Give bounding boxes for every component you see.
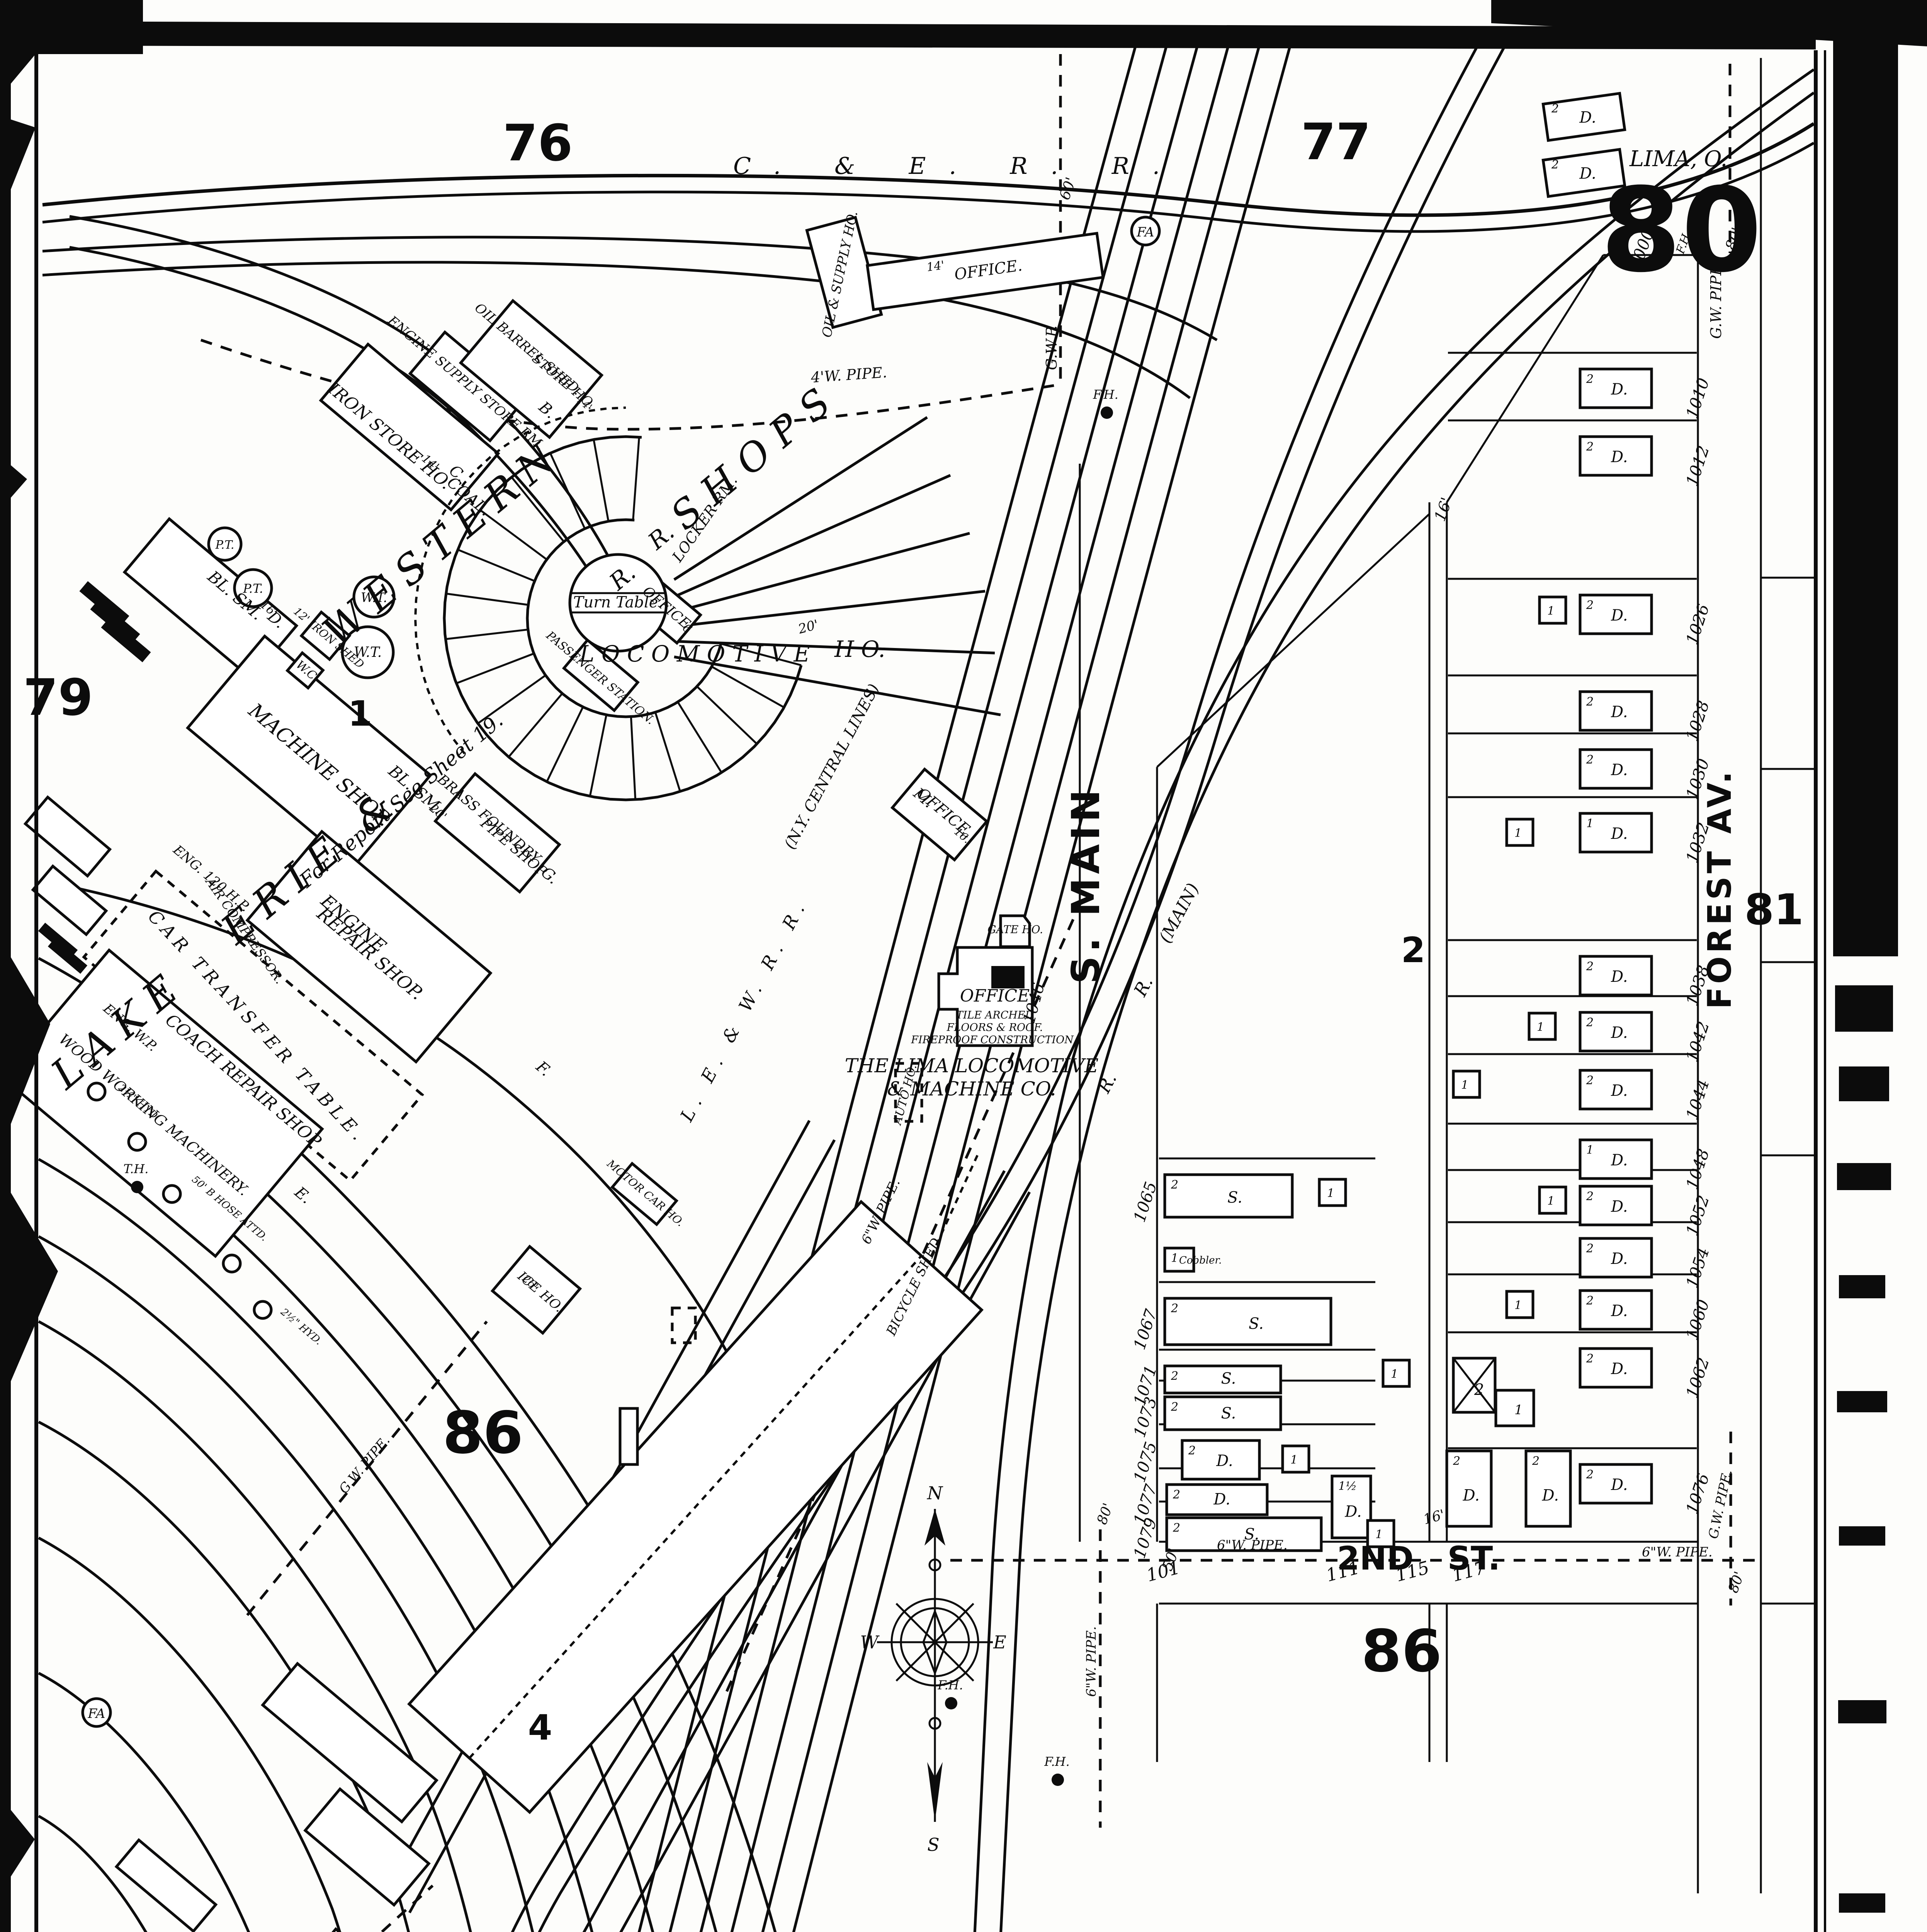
house-use: D.: [1611, 1024, 1628, 1042]
house-use: D.: [1611, 761, 1628, 779]
story-count: 2: [1586, 1074, 1594, 1087]
roundhouse-stall-line: [456, 653, 534, 683]
house: D.21062: [1580, 1349, 1713, 1400]
story-count: 2: [1474, 1381, 1484, 1399]
story-count: 2: [1171, 1302, 1178, 1315]
office-label: OFFICE: [960, 986, 1030, 1006]
construction-note: FIREPROOF CONSTRUCTION.: [911, 1034, 1076, 1046]
outbuilding: 1: [1383, 1360, 1409, 1386]
railroad-label-lew: L. E. & W. R. R.: [676, 894, 812, 1125]
fire-hydrant-label: F.H.: [1093, 387, 1118, 402]
address-number: 1075: [1130, 1439, 1161, 1485]
roundhouse-stall-line: [697, 686, 757, 744]
pipe-label: 6"W. PIPE.: [1084, 1626, 1099, 1697]
compass-s: S: [927, 1834, 940, 1855]
story-count: 2: [1551, 158, 1559, 172]
roundhouse-stall-line: [458, 549, 535, 581]
block-number-4: 4: [528, 1708, 552, 1748]
block-86: 86: [443, 1400, 523, 1467]
house: D.21052: [1580, 1186, 1713, 1238]
compass-e: E: [993, 1632, 1006, 1653]
house-use: D.: [1611, 1198, 1628, 1216]
roundhouse-stall-line: [631, 717, 635, 800]
address-number: 1026: [1682, 602, 1713, 647]
company-label: THE LIMA LOCOMOTIVE: [845, 1054, 1099, 1077]
roundhouse-stall-line: [445, 629, 528, 639]
address-number: 1067: [1130, 1307, 1161, 1352]
railroad-label-ce: C. & E. R. R.: [733, 153, 1183, 180]
house: D.21026: [1580, 595, 1713, 647]
story-count: 2: [1171, 1400, 1178, 1414]
house-use: D.: [1216, 1452, 1233, 1470]
adjacent-sheet-79: 79: [23, 668, 93, 727]
story-count: 1: [1514, 1299, 1522, 1312]
block-86: 86: [1361, 1618, 1442, 1685]
house: D.21075: [1130, 1439, 1259, 1485]
fire-hydrant: [1101, 406, 1113, 419]
pipe-label: 6"W. PIPE.: [1642, 1544, 1713, 1560]
story-count: 2: [1171, 1369, 1178, 1383]
house-use: D.: [1579, 165, 1596, 183]
address-number: 1076: [1682, 1471, 1713, 1516]
house-use: D.: [1611, 825, 1628, 843]
story-count: 2: [1586, 695, 1594, 709]
house: D.2: [1543, 94, 1625, 141]
adjacent-sheet-81: 81: [1744, 885, 1803, 934]
house-use: S.: [1227, 1189, 1242, 1207]
street-name-forest-av: FOREST AV.: [1701, 768, 1738, 1009]
house: D.1½: [1332, 1476, 1371, 1538]
pipe-label: 6"W. PIPE.: [1217, 1537, 1288, 1553]
adjacent-sheet-76: 76: [503, 114, 573, 172]
story-count: 1½: [1338, 1480, 1357, 1493]
story-count: 1: [1391, 1367, 1398, 1381]
house: D.11032: [1580, 813, 1713, 865]
story-count: 1: [1171, 1252, 1178, 1265]
outbuilding: 1: [1507, 1291, 1533, 1318]
house: D.21038: [1580, 956, 1713, 1008]
roundhouse-stall-line: [594, 439, 608, 521]
locomotive-house-label: H O.: [834, 636, 885, 662]
story-count: 2: [1586, 1190, 1594, 1203]
roundhouse-stall-line: [547, 707, 583, 782]
story-count: 2: [1532, 1454, 1540, 1468]
block-number-1: 1: [348, 694, 372, 734]
house: D.21076: [1580, 1464, 1713, 1516]
story-count: 2: [1586, 1016, 1594, 1029]
adjacent-sheet-77: 77: [1301, 112, 1371, 171]
railroad-tracks: [39, 31, 1814, 1932]
house: D.2: [1526, 1451, 1570, 1526]
house-use: D.: [1611, 448, 1628, 466]
story-count: 1: [1290, 1453, 1298, 1467]
address-number: 1028: [1682, 698, 1713, 743]
story-count: 2: [1586, 1352, 1594, 1366]
story-count: 2: [1586, 1468, 1594, 1481]
story-count: 2: [1551, 102, 1559, 116]
address-number: 1062: [1682, 1355, 1713, 1400]
house-use: D.: [1611, 968, 1628, 986]
story-count: 1: [1514, 1402, 1523, 1418]
roundhouse-stall-line: [712, 667, 784, 707]
hydrant-label: T.H.: [124, 1162, 149, 1176]
pipe-label: G.W. PIPE.: [1708, 260, 1725, 339]
street-width: 80': [1094, 1501, 1116, 1527]
locomotive-house-label: L O C O M O T I V E: [579, 641, 810, 667]
street-width: 16': [1422, 1507, 1446, 1528]
story-count: 2: [1586, 753, 1594, 767]
address-number: 1060: [1682, 1297, 1713, 1342]
fire-alarm-label: FA: [1136, 224, 1154, 240]
story-count: 1: [1547, 1194, 1555, 1208]
sanborn-map-page: D.2D.2D.21010D.21012D.21026D.21028D.2103…: [0, 0, 1927, 1932]
story-count: 2: [1586, 372, 1594, 386]
house-use: D.: [1611, 607, 1628, 624]
house-use: D.: [1463, 1487, 1480, 1505]
house: D.21042: [1580, 1012, 1713, 1064]
outbuilding: 1: [1453, 1071, 1480, 1097]
block-number-2: 2: [1401, 930, 1426, 971]
dimension: 14': [926, 259, 945, 274]
street-width: 80': [1725, 1570, 1748, 1595]
house-use: S.: [1249, 1315, 1264, 1333]
address-number: 1042: [1682, 1019, 1713, 1064]
house-use: D.: [1579, 109, 1596, 127]
fire-hydrant: [1052, 1774, 1064, 1786]
compass-n: N: [927, 1483, 943, 1503]
house-use: D.: [1542, 1487, 1559, 1505]
address-number: 1052: [1682, 1193, 1713, 1238]
hydrant-note: 2½" HYD.: [278, 1306, 325, 1347]
house-use: D.: [1611, 1302, 1628, 1320]
fire-alarm-label: FA: [87, 1706, 105, 1721]
dimension: 20': [796, 617, 820, 637]
outbuilding: 1: [1529, 1013, 1555, 1039]
story-count: 2: [1173, 1521, 1180, 1535]
house: S.21065: [1130, 1175, 1292, 1225]
story-count: 2: [1453, 1454, 1460, 1468]
story-count: 2: [1188, 1444, 1196, 1458]
street-name-s-main: S. MAIN: [1063, 786, 1108, 984]
house-use: D.: [1213, 1490, 1230, 1508]
house-use: S.: [1221, 1405, 1236, 1422]
tank-label: P.T.: [215, 538, 235, 552]
outbuilding: 1: [1507, 819, 1533, 845]
story-count: 1: [1586, 1143, 1594, 1157]
tank-label: P.T.: [243, 581, 263, 596]
story-count: 2: [1586, 1242, 1594, 1255]
story-count: 2: [1586, 440, 1594, 454]
roundhouse-stall-line: [633, 437, 639, 520]
story-count: 2: [1586, 960, 1594, 973]
outbuilding: 1: [1319, 1179, 1346, 1206]
house-use: D.: [1611, 1250, 1628, 1268]
house: D.11048: [1580, 1140, 1713, 1192]
motor-car-house-label: MOTOR CAR HO.: [604, 1157, 687, 1229]
address-number: 1044: [1682, 1077, 1713, 1122]
house: D.21028: [1580, 692, 1713, 743]
story-count: 1: [1327, 1187, 1334, 1200]
outbuilding: 1: [1540, 597, 1566, 623]
story-count: 1: [1586, 817, 1594, 830]
address-number: 1012: [1682, 443, 1713, 488]
roundhouse-stall-line: [509, 694, 562, 757]
house-use: D.: [1611, 1476, 1628, 1494]
story-count: 2: [1173, 1488, 1180, 1502]
street-width: 16': [1431, 495, 1456, 524]
cobbler-label: Cobbler.: [1179, 1255, 1222, 1266]
hydrant: [131, 1181, 143, 1193]
house: D.21012: [1580, 437, 1713, 488]
roundhouse-stall-line: [446, 594, 528, 605]
house-use: D.: [1611, 1151, 1628, 1169]
story-count: 2: [1586, 1294, 1594, 1308]
house: D.21060: [1580, 1291, 1713, 1342]
outbuilding: 1: [1283, 1446, 1309, 1472]
roundhouse-stall-line: [590, 715, 606, 796]
story-count: 2: [1586, 599, 1594, 612]
house-use: D.: [1611, 381, 1628, 398]
roundhouse-stall-line: [678, 702, 721, 773]
house: D.21044: [1580, 1070, 1713, 1122]
water-tank-label: W.T.: [361, 590, 387, 605]
story-count: 1: [1461, 1078, 1468, 1092]
pipe-label: G.W.P.: [1043, 325, 1060, 370]
street-name-2nd: 2ND: [1337, 1539, 1414, 1577]
house: S.21067: [1130, 1298, 1331, 1352]
track-letter: F.: [532, 1058, 554, 1080]
railroad-label-nyc: (N.Y. CENTRAL LINES): [781, 681, 883, 852]
map-canvas: D.2D.2D.21010D.21012D.21026D.21028D.2103…: [0, 0, 1927, 1932]
story-count: 1: [1547, 604, 1555, 618]
address-number: 1010: [1682, 376, 1713, 421]
compass-rose: N E S W: [860, 1483, 1006, 1855]
street-name-2nd-st: ST.: [1448, 1539, 1500, 1577]
gate-house-label: GATE HO.: [987, 923, 1043, 936]
house-use: D.: [1344, 1503, 1361, 1521]
rr-shops-label: S H O P S: [662, 380, 839, 539]
house-use: D.: [1611, 703, 1628, 721]
fire-hydrant: [945, 1697, 957, 1709]
address-number: 1054: [1682, 1245, 1713, 1290]
story-count: 1: [1537, 1020, 1544, 1034]
house: D.21030: [1580, 750, 1713, 801]
house-use: D.: [1611, 1360, 1628, 1378]
fire-hydrant-label: F.H.: [1044, 1754, 1069, 1769]
house-use: D.: [1611, 1082, 1628, 1100]
track-letter: E.: [291, 1183, 315, 1207]
compass-w: W: [860, 1632, 880, 1653]
outbuilding: 1: [1540, 1187, 1566, 1213]
roundhouse-stall-line: [655, 712, 680, 791]
story-count: 2: [1171, 1178, 1178, 1192]
story-count: 1: [1514, 827, 1522, 840]
house: D.2: [1447, 1451, 1491, 1526]
address-number: 1065: [1130, 1179, 1161, 1225]
water-tank-label: W.T.: [354, 645, 382, 660]
house: D.21054: [1580, 1238, 1713, 1290]
house: S.21073: [1130, 1395, 1281, 1440]
house: D.21010: [1580, 369, 1713, 421]
house-use: S.: [1221, 1370, 1236, 1388]
pipe-label: 4'W. PIPE.: [810, 364, 888, 386]
